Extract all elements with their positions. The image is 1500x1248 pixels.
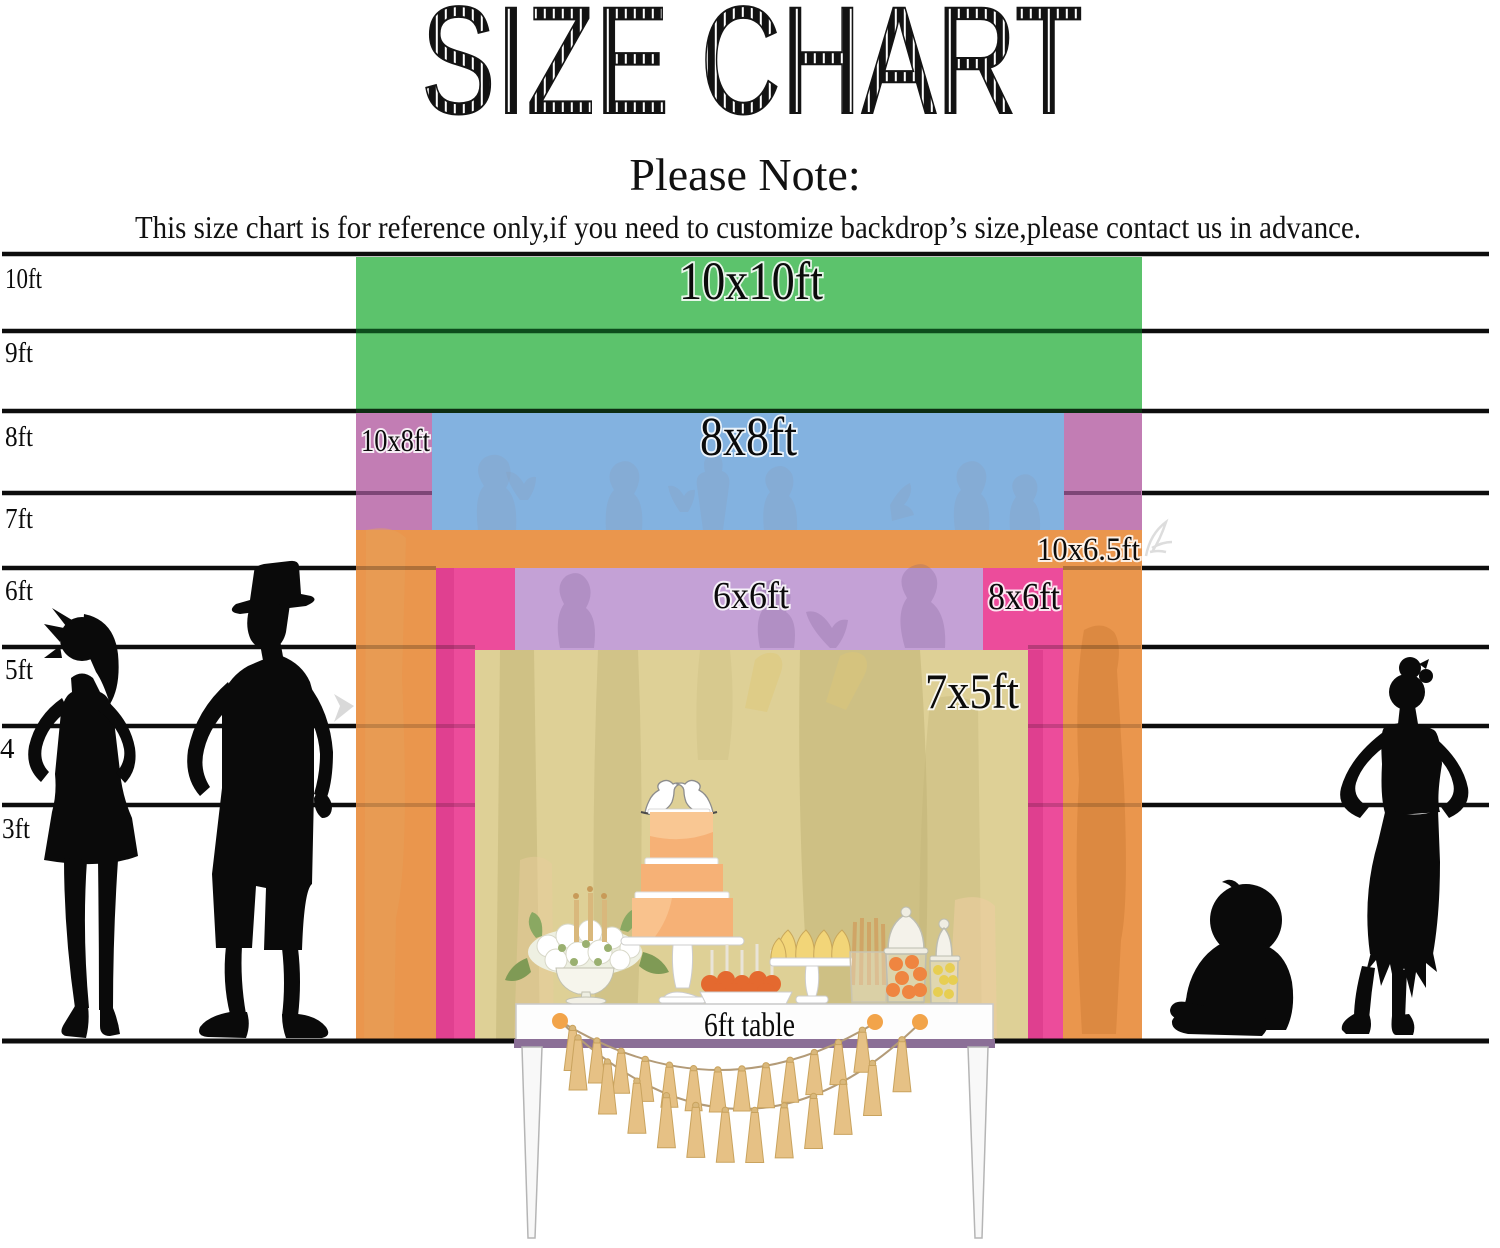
svg-text:10x8ft: 10x8ft xyxy=(361,422,430,458)
svg-text:6ft: 6ft xyxy=(5,575,33,607)
svg-text:10x6.5ft: 10x6.5ft xyxy=(1037,532,1140,568)
svg-text:6x6ft: 6x6ft xyxy=(713,575,789,617)
svg-text:9ft: 9ft xyxy=(5,337,33,369)
svg-text:SIZE CHART: SIZE CHART xyxy=(421,0,1083,146)
svg-text:8x6ft: 8x6ft xyxy=(988,576,1060,618)
svg-text:6ft table: 6ft table xyxy=(704,1007,795,1044)
svg-text:8ft: 8ft xyxy=(5,421,33,453)
svg-text:This size chart is for referen: This size chart is for reference only,if… xyxy=(135,210,1361,245)
svg-text:7x5ft: 7x5ft xyxy=(925,663,1019,719)
svg-text:3ft: 3ft xyxy=(2,813,30,845)
svg-text:7ft: 7ft xyxy=(5,503,33,535)
svg-text:Please Note:: Please Note: xyxy=(629,149,860,200)
svg-text:5ft: 5ft xyxy=(5,654,33,686)
svg-text:4: 4 xyxy=(0,733,15,765)
svg-text:8x8ft: 8x8ft xyxy=(700,406,797,467)
svg-text:10x10ft: 10x10ft xyxy=(679,251,823,311)
svg-text:10ft: 10ft xyxy=(5,263,42,295)
